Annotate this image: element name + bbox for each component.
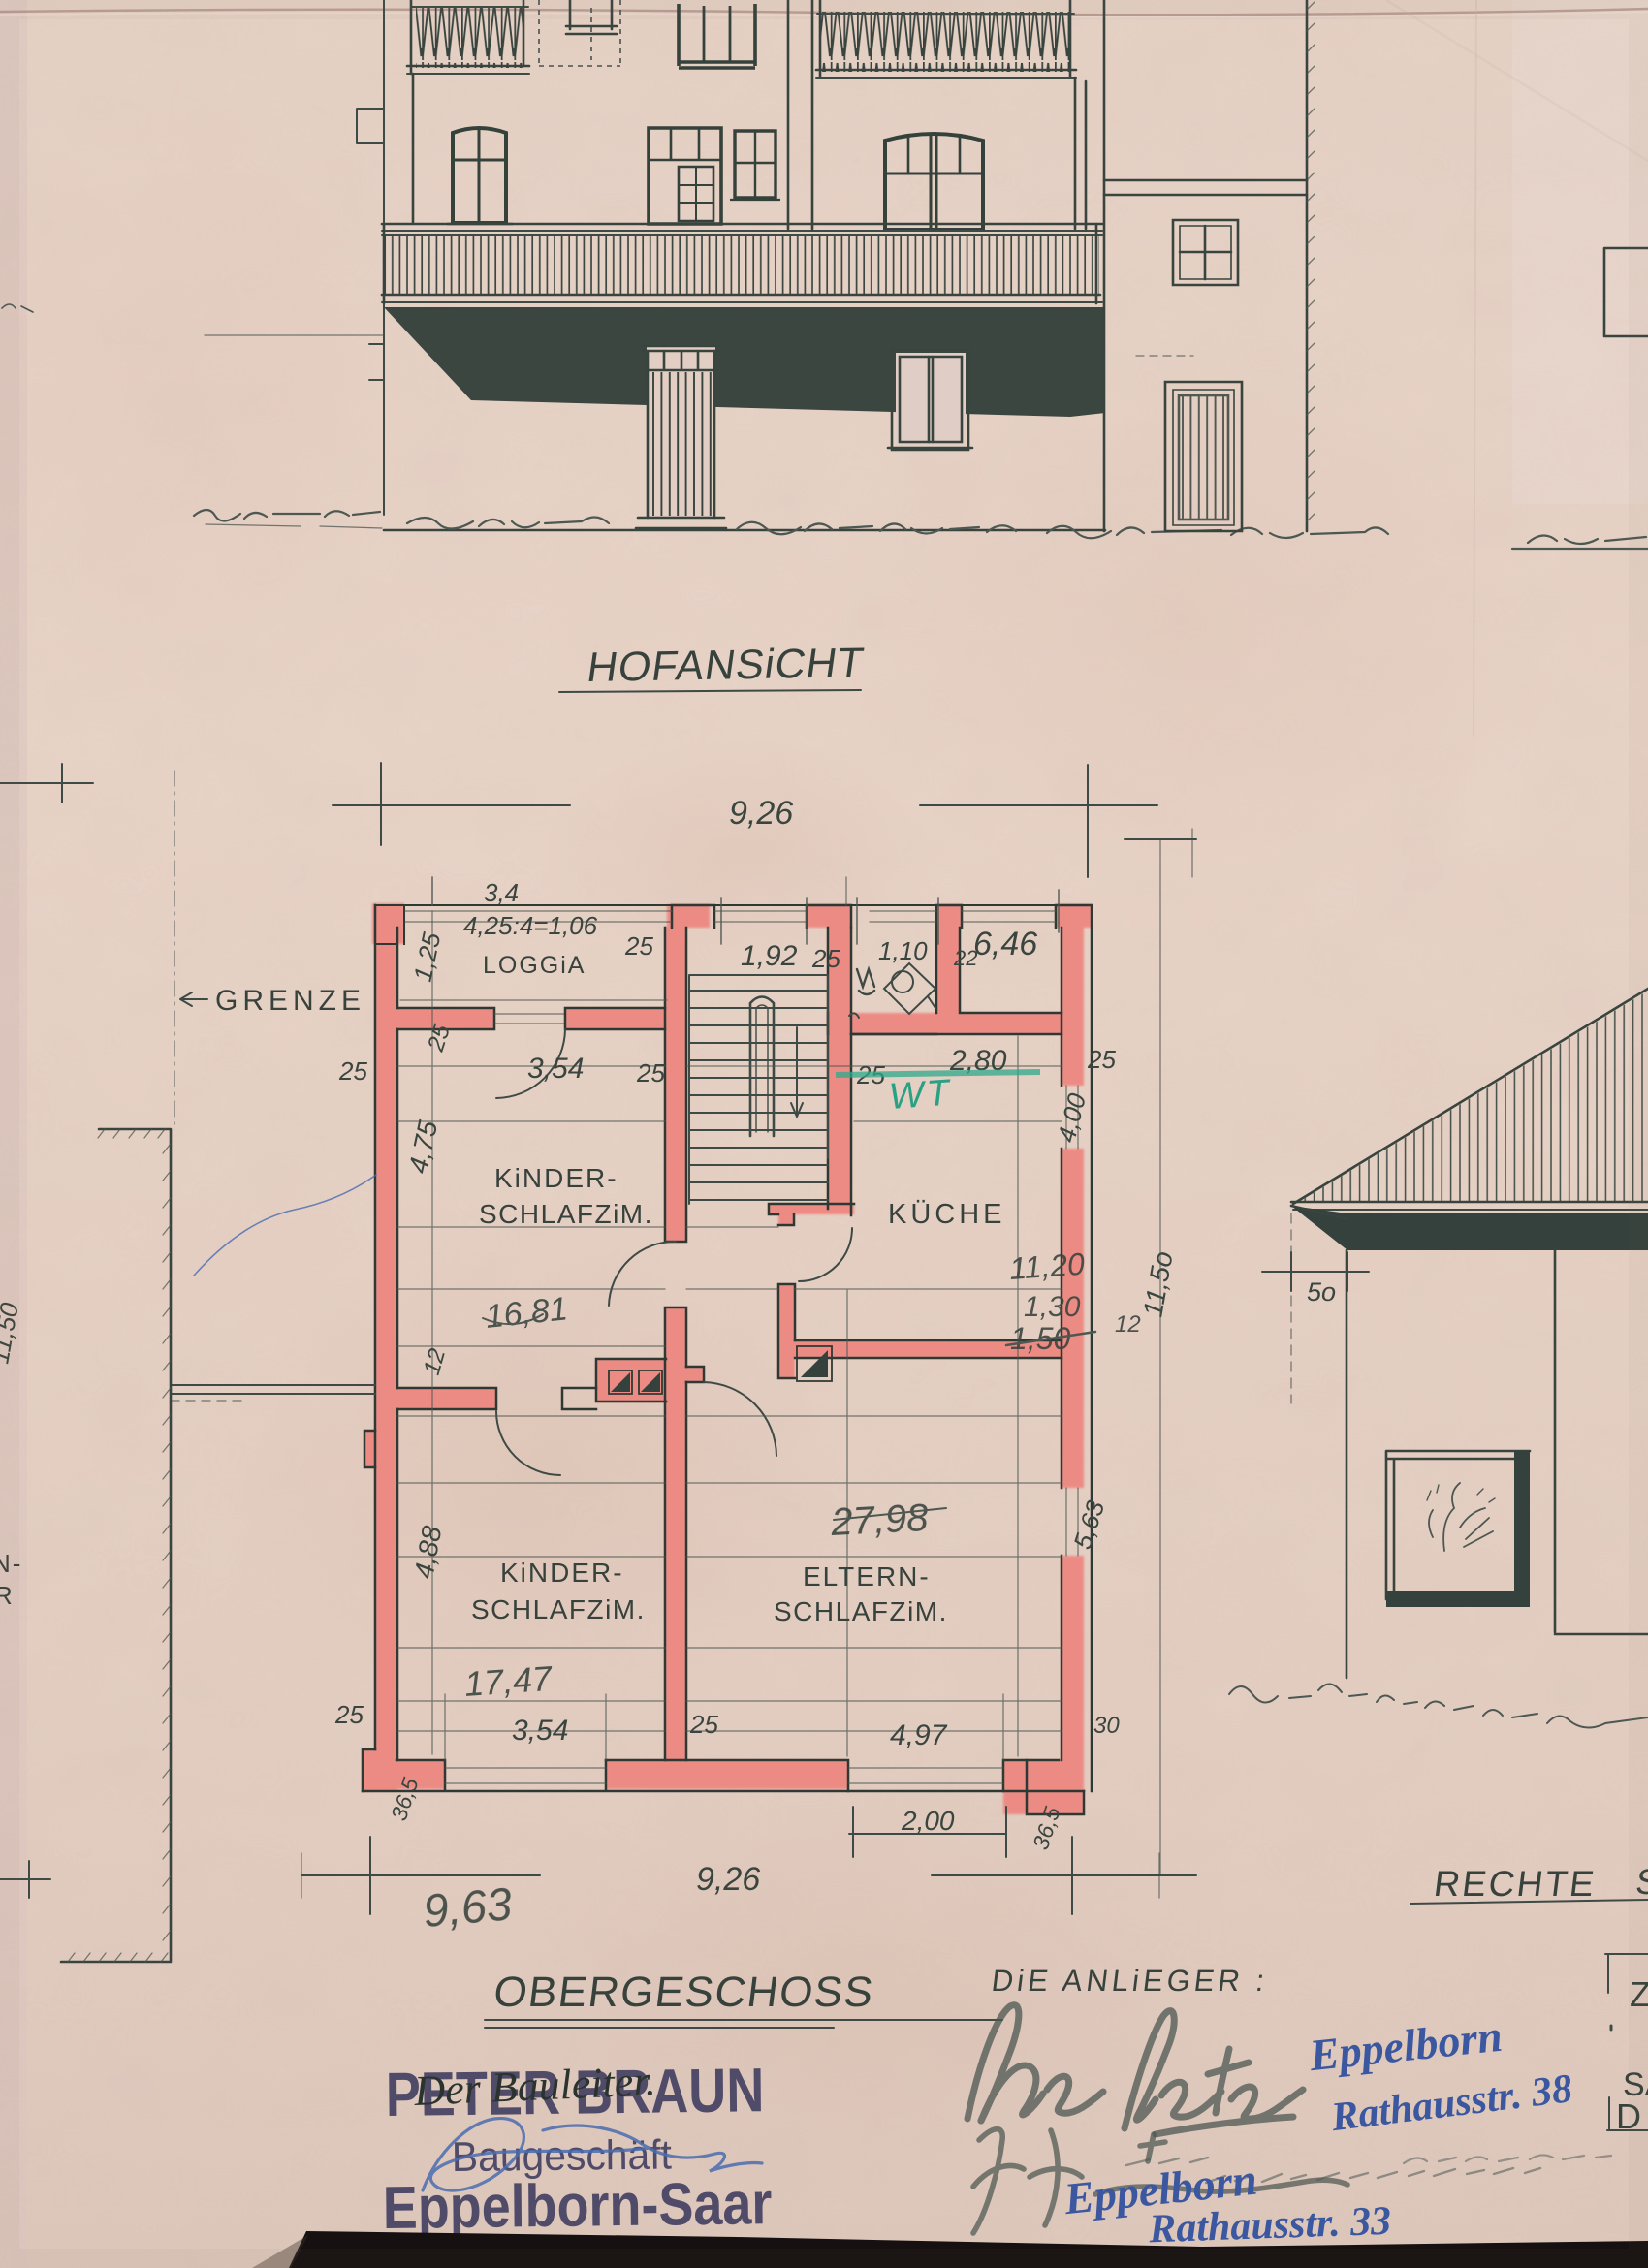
svg-text:3,54: 3,54 xyxy=(527,1053,584,1085)
svg-text:DiE ANLiEGER :: DiE ANLiEGER : xyxy=(990,1964,1270,1998)
svg-text:11,20: 11,20 xyxy=(1008,1246,1086,1286)
svg-text:3,54: 3,54 xyxy=(512,1715,568,1747)
svg-text:1,50: 1,50 xyxy=(1010,1321,1070,1356)
svg-text:HOFANSiCHT: HOFANSiCHT xyxy=(585,640,868,691)
svg-text:25: 25 xyxy=(624,931,653,961)
svg-text:9,26: 9,26 xyxy=(696,1861,760,1898)
svg-text:1,92: 1,92 xyxy=(741,940,798,972)
svg-text:2,00: 2,00 xyxy=(901,1806,955,1836)
svg-text:ELTERN-: ELTERN- xyxy=(803,1561,931,1591)
svg-text:GRENZE: GRENZE xyxy=(215,985,365,1017)
svg-text:1,10: 1,10 xyxy=(878,936,928,965)
svg-text:KiNDER-: KiNDER- xyxy=(500,1558,624,1588)
svg-text:3,4: 3,4 xyxy=(484,878,519,907)
svg-text:9,26: 9,26 xyxy=(729,795,793,832)
svg-text:SCHLAFZiM.: SCHLAFZiM. xyxy=(479,1199,653,1229)
svg-text:Rathausstr. 33: Rathausstr. 33 xyxy=(1148,2199,1392,2252)
svg-text:4,25:4=1,06: 4,25:4=1,06 xyxy=(463,911,598,940)
svg-text:4,97: 4,97 xyxy=(890,1719,948,1751)
svg-text:SCHLAFZiM.: SCHLAFZiM. xyxy=(471,1594,646,1624)
svg-text:Eppelborn-Saar: Eppelborn-Saar xyxy=(382,2170,772,2242)
svg-text:9,63: 9,63 xyxy=(421,1877,514,1937)
svg-text:OBERGESCHOSS: OBERGESCHOSS xyxy=(491,1969,877,2016)
svg-text:1,30: 1,30 xyxy=(1024,1291,1081,1323)
svg-text:5o: 5o xyxy=(1307,1277,1336,1307)
svg-text:RECHTE: RECHTE xyxy=(1432,1863,1599,1904)
svg-text:LOGGiA: LOGGiA xyxy=(483,952,586,979)
svg-text:25: 25 xyxy=(689,1710,718,1739)
svg-text:25: 25 xyxy=(1087,1045,1116,1074)
svg-text:25: 25 xyxy=(636,1058,665,1087)
svg-text:KiNDER-: KiNDER- xyxy=(494,1163,618,1193)
svg-text:17,47: 17,47 xyxy=(463,1658,555,1704)
svg-text:27,98: 27,98 xyxy=(829,1496,930,1544)
svg-text:25: 25 xyxy=(811,944,840,973)
svg-text:25: 25 xyxy=(334,1700,364,1729)
svg-text:25: 25 xyxy=(338,1056,367,1086)
svg-text:30: 30 xyxy=(1093,1713,1120,1739)
svg-text:SCHLAFZiM.: SCHLAFZiM. xyxy=(774,1596,948,1626)
svg-text:6,46: 6,46 xyxy=(973,926,1037,962)
svg-text:12: 12 xyxy=(1115,1311,1141,1338)
svg-text:KÜCHE: KÜCHE xyxy=(888,1199,1006,1230)
svg-text:WT: WT xyxy=(888,1073,954,1118)
